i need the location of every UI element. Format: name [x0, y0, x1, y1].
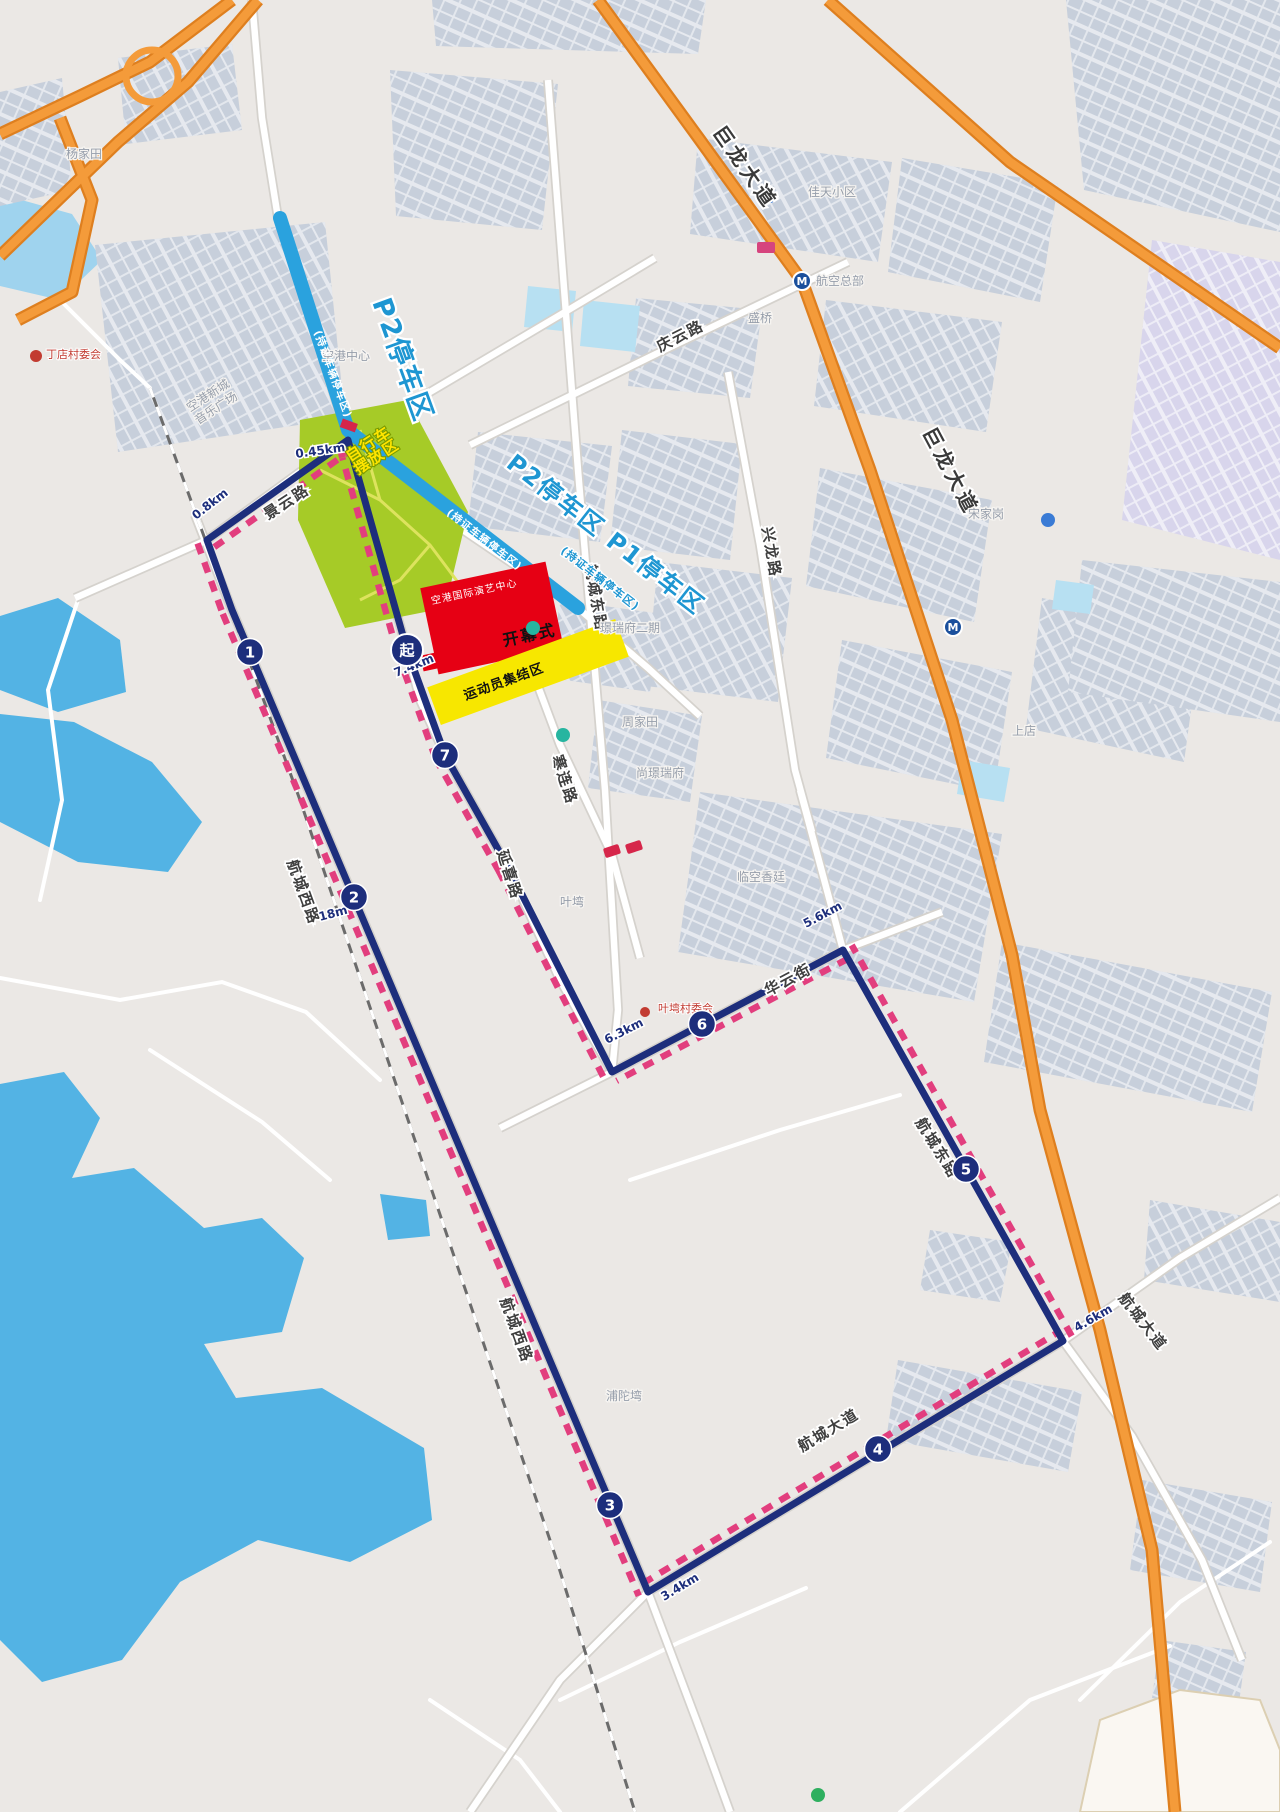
- place-name-label: 杨家田: [66, 146, 102, 161]
- km-marker-2: 2: [341, 884, 368, 911]
- svg-text:6: 6: [697, 1016, 707, 1034]
- svg-text:1: 1: [245, 644, 255, 662]
- park-poi-icon: [556, 728, 570, 742]
- lake: [380, 1194, 430, 1240]
- svg-text:3: 3: [605, 1497, 615, 1515]
- place-name-label: 上店: [1012, 724, 1036, 738]
- km-marker-1: 1: [237, 639, 264, 666]
- km-marker-4: 4: [865, 1436, 892, 1463]
- start-marker-label: 起: [398, 642, 415, 660]
- race-route-map: 空港国际演艺中心开幕式运动员集结区M航空总部M景云路航城西路航城西路延喜路寒连路…: [0, 0, 1280, 1812]
- poi-name-label: 丁店村委会: [46, 347, 101, 361]
- poi-dot-icon: [1041, 513, 1055, 527]
- metro-m-icon: M: [797, 275, 808, 288]
- metro-station: M: [944, 618, 962, 636]
- map-canvas: 空港国际演艺中心开幕式运动员集结区M航空总部M景云路航城西路航城西路延喜路寒连路…: [0, 0, 1280, 1812]
- svg-text:4: 4: [873, 1441, 883, 1459]
- svg-text:5: 5: [961, 1161, 971, 1179]
- place-name-label: 尚璟瑞府: [636, 765, 684, 780]
- km-marker-3: 3: [597, 1492, 624, 1519]
- park-poi-icon: [526, 621, 540, 635]
- road-badge: [757, 242, 775, 253]
- km-marker-5: 5: [953, 1156, 980, 1183]
- poi-green-icon: [811, 1788, 825, 1802]
- place-name-label: 周家田: [622, 714, 658, 729]
- poi-red-icon: [640, 1007, 650, 1017]
- svg-text:2: 2: [349, 889, 359, 907]
- metro-m-icon: M: [948, 621, 959, 634]
- km-marker-6: 6: [689, 1011, 716, 1038]
- place-name-label: 临空香廷: [737, 870, 785, 884]
- metro-station: M航空总部: [793, 272, 864, 290]
- svg-text:7: 7: [440, 747, 450, 765]
- place-name-label: 叶塆: [560, 894, 584, 909]
- poi-red-icon: [30, 350, 42, 362]
- place-name-label: 浦陀塆: [606, 1388, 642, 1403]
- metro-station-label: 航空总部: [816, 273, 864, 288]
- start-marker: 起: [391, 634, 423, 666]
- place-name-label: 宋家岗: [968, 506, 1004, 521]
- km-marker-7: 7: [432, 742, 459, 769]
- place-name-label: 璟瑞府二期: [600, 620, 660, 635]
- place-name-label: 盛桥: [748, 310, 772, 325]
- place-name-label: 佳天小区: [808, 185, 856, 199]
